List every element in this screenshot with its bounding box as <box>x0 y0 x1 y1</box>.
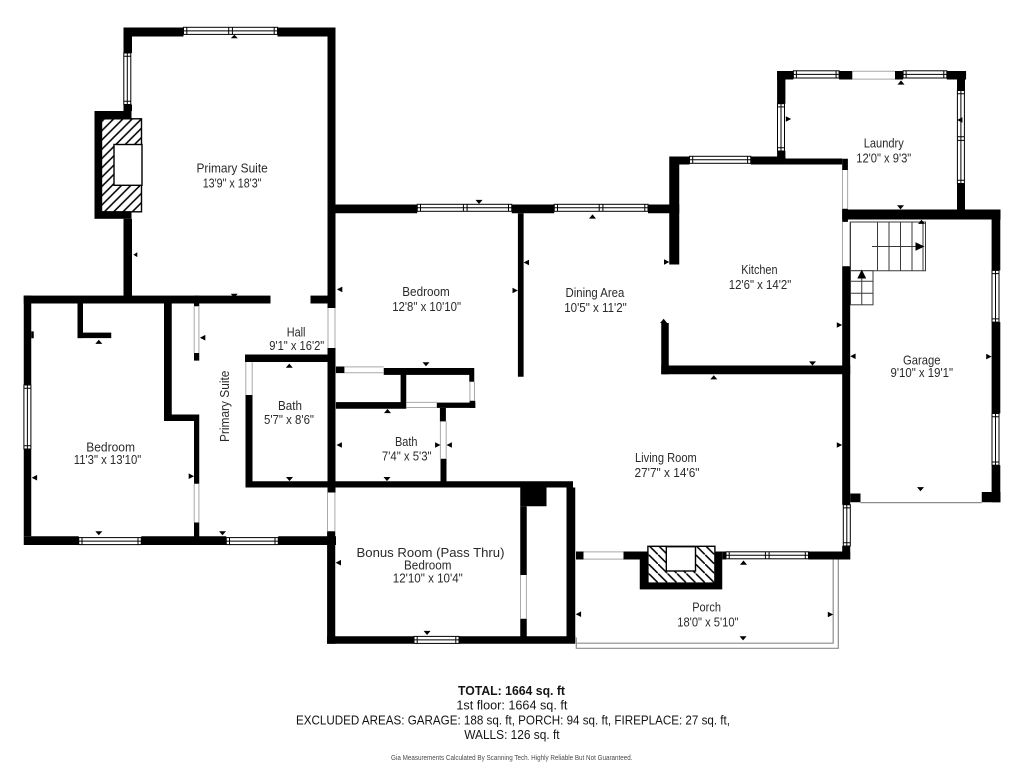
svg-text:13'9" x 18'3": 13'9" x 18'3" <box>203 176 262 191</box>
svg-text:Primary Suite: Primary Suite <box>217 371 232 442</box>
svg-text:7'4" x 5'3": 7'4" x 5'3" <box>382 448 432 463</box>
svg-text:Bath: Bath <box>395 434 418 449</box>
svg-text:Bath: Bath <box>278 398 302 413</box>
svg-text:Laundry: Laundry <box>864 135 904 150</box>
svg-text:11'3" x 13'10": 11'3" x 13'10" <box>74 452 142 467</box>
svg-text:27'7" x 14'6": 27'7" x 14'6" <box>635 465 700 480</box>
svg-text:12'8" x 10'10": 12'8" x 10'10" <box>392 299 461 314</box>
svg-text:Gia Measurements Calculated By: Gia Measurements Calculated By Scanning … <box>391 755 633 762</box>
svg-text:Primary Suite: Primary Suite <box>196 161 267 176</box>
svg-text:Dining Area: Dining Area <box>566 285 625 300</box>
svg-text:Porch: Porch <box>692 600 721 615</box>
svg-text:WALLS: 126 sq. ft: WALLS: 126 sq. ft <box>464 727 560 742</box>
svg-text:9'10" x 19'1": 9'10" x 19'1" <box>891 365 954 380</box>
svg-text:5'7" x 8'6": 5'7" x 8'6" <box>264 412 314 427</box>
svg-text:Bedroom: Bedroom <box>402 284 450 299</box>
svg-text:TOTAL: 1664 sq. ft: TOTAL: 1664 sq. ft <box>458 683 566 698</box>
svg-text:18'0" x 5'10": 18'0" x 5'10" <box>677 614 739 629</box>
svg-text:1st floor: 1664 sq. ft: 1st floor: 1664 sq. ft <box>456 698 567 713</box>
svg-text:Living Room: Living Room <box>635 450 697 465</box>
svg-text:12'0" x 9'3": 12'0" x 9'3" <box>856 150 911 165</box>
svg-text:9'1" x 16'2": 9'1" x 16'2" <box>269 338 324 353</box>
svg-text:12'10" x 10'4": 12'10" x 10'4" <box>393 571 463 586</box>
svg-text:EXCLUDED AREAS: GARAGE: 188 sq: EXCLUDED AREAS: GARAGE: 188 sq. ft, PORC… <box>296 712 730 727</box>
svg-text:12'6" x 14'2": 12'6" x 14'2" <box>729 277 792 292</box>
svg-text:10'5" x 11'2": 10'5" x 11'2" <box>564 300 627 315</box>
svg-text:Kitchen: Kitchen <box>741 262 777 277</box>
svg-text:Hall: Hall <box>287 324 306 339</box>
